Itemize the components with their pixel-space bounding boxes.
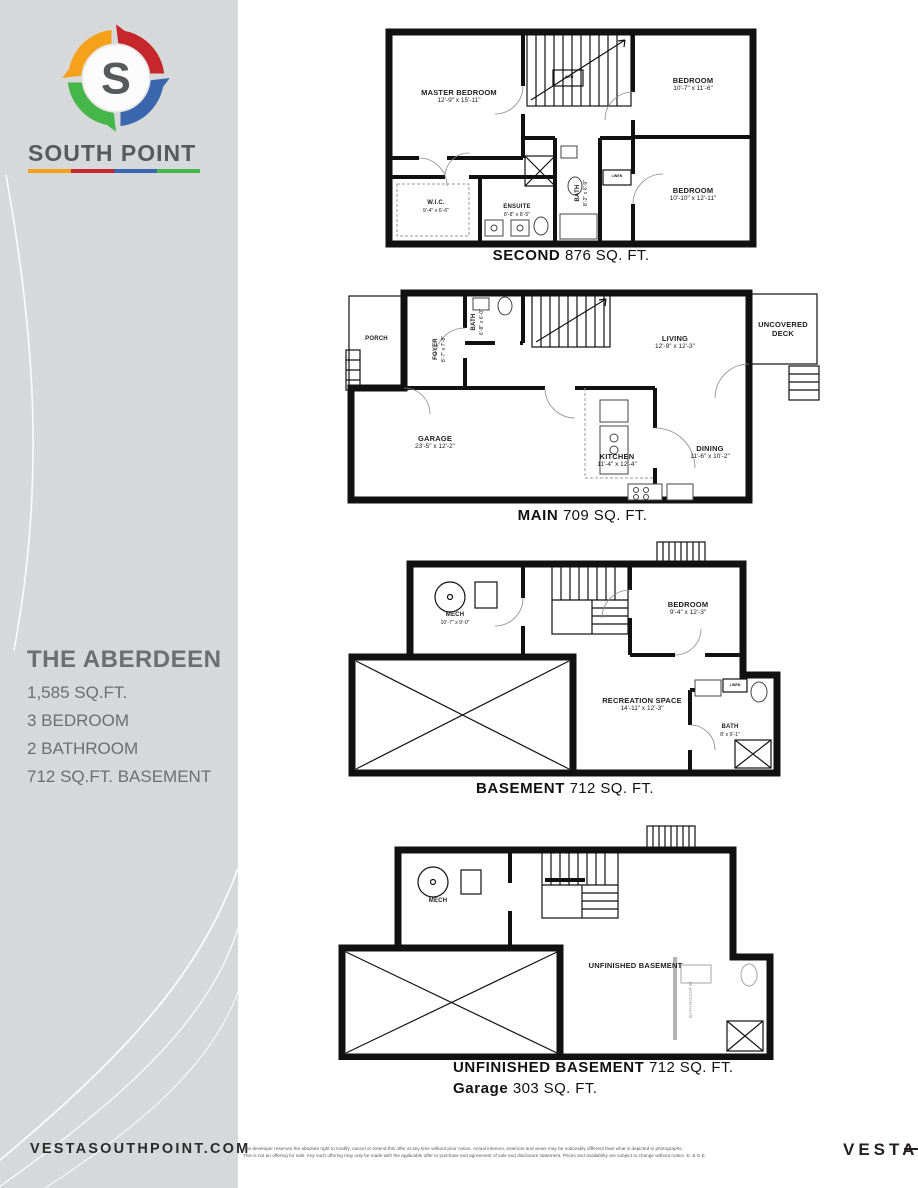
room-bath: BATH 8'-2" x 6'-9"	[575, 163, 589, 223]
brand-underline	[28, 169, 200, 173]
website-url: VESTASOUTHPOINT.COM	[30, 1141, 250, 1157]
brand-title: SOUTH POINT	[28, 140, 210, 167]
room-uncovered-deck: UNCOVERED DECK	[747, 320, 819, 339]
vesta-logo: VESTA	[843, 1140, 918, 1160]
room-foyer: FOYER 8'-7" x 7'-8"	[433, 319, 447, 379]
unfinished-basement-caption: UNFINISHED BASEMENT 712 SQ. FT. Garage 3…	[453, 1057, 783, 1099]
room-basement-bedroom: BEDROOM 9'-4" x 12'-3"	[628, 600, 748, 618]
room-bedroom-2: BEDROOM 10'-7" x 11'-6"	[637, 76, 749, 94]
spec-area: 1,585 SQ.FT.	[27, 679, 211, 707]
room-unfinished-mech: MECH	[378, 898, 498, 906]
vesta-logo-crossbar	[904, 1148, 918, 1150]
basement-plan-drawing	[345, 540, 785, 785]
room-dining: DINING 11'-6" x 10'-2"	[650, 444, 770, 462]
room-master-bedroom: MASTER BEDROOM 12'-9" x 15'-11"	[397, 88, 521, 106]
room-recreation-space: RECREATION SPACE 14'-11" x 12'-3"	[562, 696, 722, 714]
spec-basement: 712 SQ.FT. BASEMENT	[27, 763, 211, 791]
basement-caption: BASEMENT 712 SQ. FT.	[345, 780, 785, 797]
room-garage: GARAGE 23'-5" x 12'-2"	[375, 434, 495, 452]
second-floor-caption: SECOND 876 SQ. FT.	[385, 247, 757, 264]
underline-blue-segment	[114, 169, 157, 173]
main-floor-plan: PORCH FOYER 8'-7" x 7'-8" BATH 6'-8" x 6…	[345, 288, 820, 510]
basement-plan: MECH 10'-7" x 9'-0" BEDROOM 9'-4" x 12'-…	[345, 540, 785, 785]
label-linen-1: LINEN	[553, 75, 583, 79]
unfinished-basement-plan-drawing	[335, 825, 785, 1060]
label-bath-rough-in: BATH ROUGH-IN	[688, 969, 694, 1031]
second-floor-plan-drawing	[385, 28, 757, 248]
south-point-compass-logo: S	[60, 22, 172, 134]
disclaimer-line-2: This is not an offering for sale. Any su…	[243, 1153, 801, 1160]
room-porch: PORCH	[349, 336, 404, 344]
legal-disclaimer: The developer reserves the absolute righ…	[243, 1146, 801, 1160]
spec-bathrooms: 2 BATHROOM	[27, 735, 211, 763]
plan-specs: 1,585 SQ.FT. 3 BEDROOM 2 BATHROOM 712 SQ…	[27, 679, 211, 791]
main-floor-caption: MAIN 709 SQ. FT.	[345, 507, 820, 524]
underline-red-segment	[71, 169, 114, 173]
second-floor-plan: MASTER BEDROOM 12'-9" x 15'-11" BEDROOM …	[385, 28, 757, 248]
spec-bedrooms: 3 BEDROOM	[27, 707, 211, 735]
room-bedroom-3: BEDROOM 10'-10" x 12'-11"	[637, 186, 749, 204]
room-living: LIVING 12'-9" x 12'-3"	[615, 334, 735, 352]
underline-orange-segment	[28, 169, 71, 173]
decorative-swoosh-lines	[0, 0, 238, 1188]
room-wic: W.I.C. 9'-4" x 6'-6"	[399, 200, 473, 214]
label-linen-basement: LINEN	[723, 683, 747, 687]
room-basement-bath: BATH 8' x 9'-1"	[700, 724, 760, 738]
unfinished-basement-plan: MECH UNFINISHED BASEMENT BATH ROUGH-IN	[335, 825, 785, 1060]
sidebar: S SOUTH POINT THE ABERDEEN 1,585 SQ.FT. …	[0, 0, 238, 1188]
room-mech: MECH 10'-7" x 9'-0"	[395, 612, 515, 626]
plan-name: THE ABERDEEN	[27, 646, 221, 674]
disclaimer-line-1: The developer reserves the absolute righ…	[243, 1146, 801, 1153]
room-main-bath: BATH 6'-8" x 6'-0"	[471, 292, 485, 352]
underline-green-segment	[157, 169, 200, 173]
logo-letter: S	[101, 54, 131, 104]
room-ensuite: ENSUITE 8'-8" x 8'-5"	[481, 204, 553, 218]
label-linen-2: LINEN	[603, 174, 631, 178]
